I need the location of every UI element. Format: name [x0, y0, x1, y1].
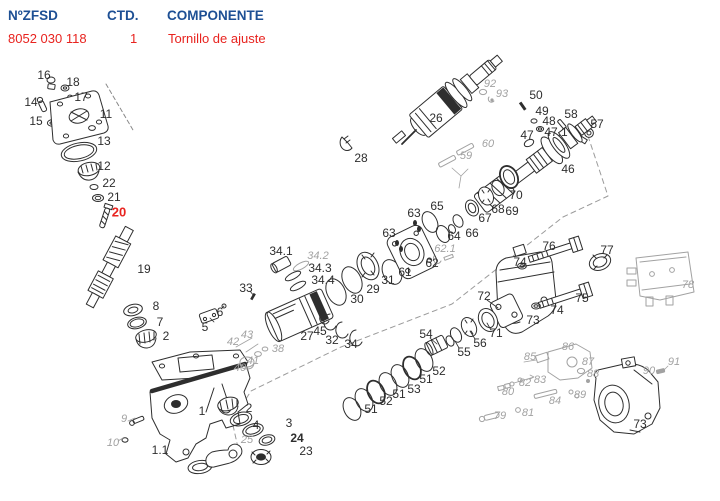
ghost-parts-92-93 [479, 89, 494, 102]
part-label-61: 61 [398, 265, 412, 279]
part-label-57: 57 [590, 117, 604, 131]
part-label-23: 23 [299, 444, 313, 458]
part-label-22: 22 [102, 176, 116, 190]
part-label-34.1: 34.1 [269, 244, 293, 258]
part-label-88: 88 [587, 368, 600, 380]
part-label-47: 47 [520, 128, 534, 142]
parts-catalog-page: { "header": { "col_part_no": "NºZFSD", "… [0, 0, 720, 501]
part-label-90: 90 [643, 365, 656, 377]
part-label-58: 58 [564, 107, 578, 121]
part-label-18: 18 [66, 75, 80, 89]
part-label-79: 79 [494, 410, 506, 422]
part-label-14: 14 [24, 95, 38, 109]
part-label-24: 24 [290, 431, 304, 445]
part-label-68: 68 [491, 202, 505, 216]
parts-8-7-washers [122, 302, 147, 330]
part-label-2: 2 [163, 329, 170, 343]
part-label-87: 87 [582, 356, 595, 368]
part-label-1.1: 1.1 [152, 443, 169, 457]
part-label-21: 21 [107, 190, 121, 204]
part-label-60: 60 [482, 138, 495, 150]
part-label-53: 53 [407, 382, 421, 396]
part-label-33: 33 [239, 281, 253, 295]
part-label-28: 28 [354, 151, 368, 165]
part-label-4: 4 [253, 418, 260, 432]
part-label-82: 82 [519, 377, 531, 389]
part-label-75: 75 [575, 291, 589, 305]
part-label-34: 34 [344, 337, 358, 351]
part-label-46: 46 [561, 162, 575, 176]
part-label-9: 9 [121, 413, 127, 425]
part-label-31: 31 [381, 273, 395, 287]
part-label-19: 19 [137, 262, 151, 276]
part-label-1: 1 [199, 404, 206, 418]
part-label-80: 80 [502, 386, 515, 398]
part-label-62.1: 62.1 [434, 243, 455, 255]
part-label-66: 66 [465, 226, 479, 240]
part-2-bearing-upper [134, 328, 157, 348]
parts-34-series [269, 256, 310, 293]
part-label-12: 12 [97, 159, 111, 173]
part-label-63: 63 [407, 206, 421, 220]
part-13-gasket [60, 139, 99, 164]
part-label-83: 83 [534, 374, 547, 386]
exploded-diagram: 1618171415111312222120198725633434238414… [0, 0, 720, 501]
part-label-84: 84 [549, 395, 561, 407]
part-label-92: 92 [484, 78, 496, 90]
part-label-52: 52 [432, 364, 446, 378]
part-label-64: 64 [447, 229, 461, 243]
part-label-78: 78 [682, 279, 695, 291]
part-label-13: 13 [97, 134, 111, 148]
part-label-77: 77 [600, 243, 614, 257]
part-label-72: 72 [477, 289, 491, 303]
part-label-40: 40 [234, 362, 247, 374]
part-label-52: 52 [379, 394, 393, 408]
part-label-76: 76 [542, 239, 556, 253]
part-label-15: 15 [29, 114, 43, 128]
part-label-54: 54 [419, 327, 433, 341]
part-label-51: 51 [364, 402, 378, 416]
part-label-73: 73 [633, 417, 647, 431]
part-label-29: 29 [366, 282, 380, 296]
part-label-74: 74 [550, 303, 564, 317]
part-label-67: 67 [478, 211, 492, 225]
part-label-41: 41 [247, 355, 259, 367]
part-label-26: 26 [429, 111, 443, 125]
part-label-69: 69 [505, 204, 519, 218]
part-label-51: 51 [419, 372, 433, 386]
part-label-42: 42 [227, 336, 239, 348]
part-label-59: 59 [460, 150, 472, 162]
part-label-8: 8 [153, 299, 160, 313]
part-label-65: 65 [430, 199, 444, 213]
part-label-55: 55 [457, 345, 471, 359]
part-label-38: 38 [272, 343, 285, 355]
part-label-93: 93 [496, 88, 509, 100]
part-label-6: 6 [217, 305, 224, 319]
part-label-32: 32 [325, 333, 339, 347]
part-label-70: 70 [509, 188, 523, 202]
part-label-71: 71 [489, 326, 503, 340]
part-label-91: 91 [668, 356, 680, 368]
part-label-27: 27 [300, 329, 314, 343]
part-label-7: 7 [157, 315, 164, 329]
part-label-86: 86 [562, 341, 575, 353]
part-label-73: 73 [526, 313, 540, 327]
part-label-50: 50 [529, 88, 543, 102]
part-label-81: 81 [522, 407, 534, 419]
part-label-16: 16 [37, 68, 51, 82]
part-label-89: 89 [574, 389, 586, 401]
part-20-adjust-screw [98, 203, 113, 228]
part-label-11: 11 [100, 107, 113, 121]
part-25-clamp [206, 444, 242, 467]
part-label-62: 62 [425, 256, 439, 270]
part-26-control-valve [392, 46, 510, 144]
part-28-clip [340, 136, 352, 151]
part-label-2: 2 [246, 401, 253, 415]
part-label-47.1: 47.1 [544, 125, 568, 139]
part-label-10: 10 [107, 437, 120, 449]
part-label-63: 63 [382, 226, 396, 240]
part-19-sector-shaft [81, 224, 138, 309]
part-label-17: 17 [74, 90, 88, 104]
part-label-85: 85 [524, 351, 537, 363]
part-label-51: 51 [392, 387, 406, 401]
part-label-74: 74 [513, 255, 527, 269]
part-label-43: 43 [241, 329, 254, 341]
part-label-5: 5 [202, 320, 209, 334]
part-label-25: 25 [240, 434, 254, 446]
part-label-30: 30 [350, 292, 364, 306]
part-label-56: 56 [473, 336, 487, 350]
part-label-34.4: 34.4 [311, 273, 335, 287]
part-label-20: 20 [112, 205, 126, 220]
part-label-3: 3 [286, 416, 293, 430]
